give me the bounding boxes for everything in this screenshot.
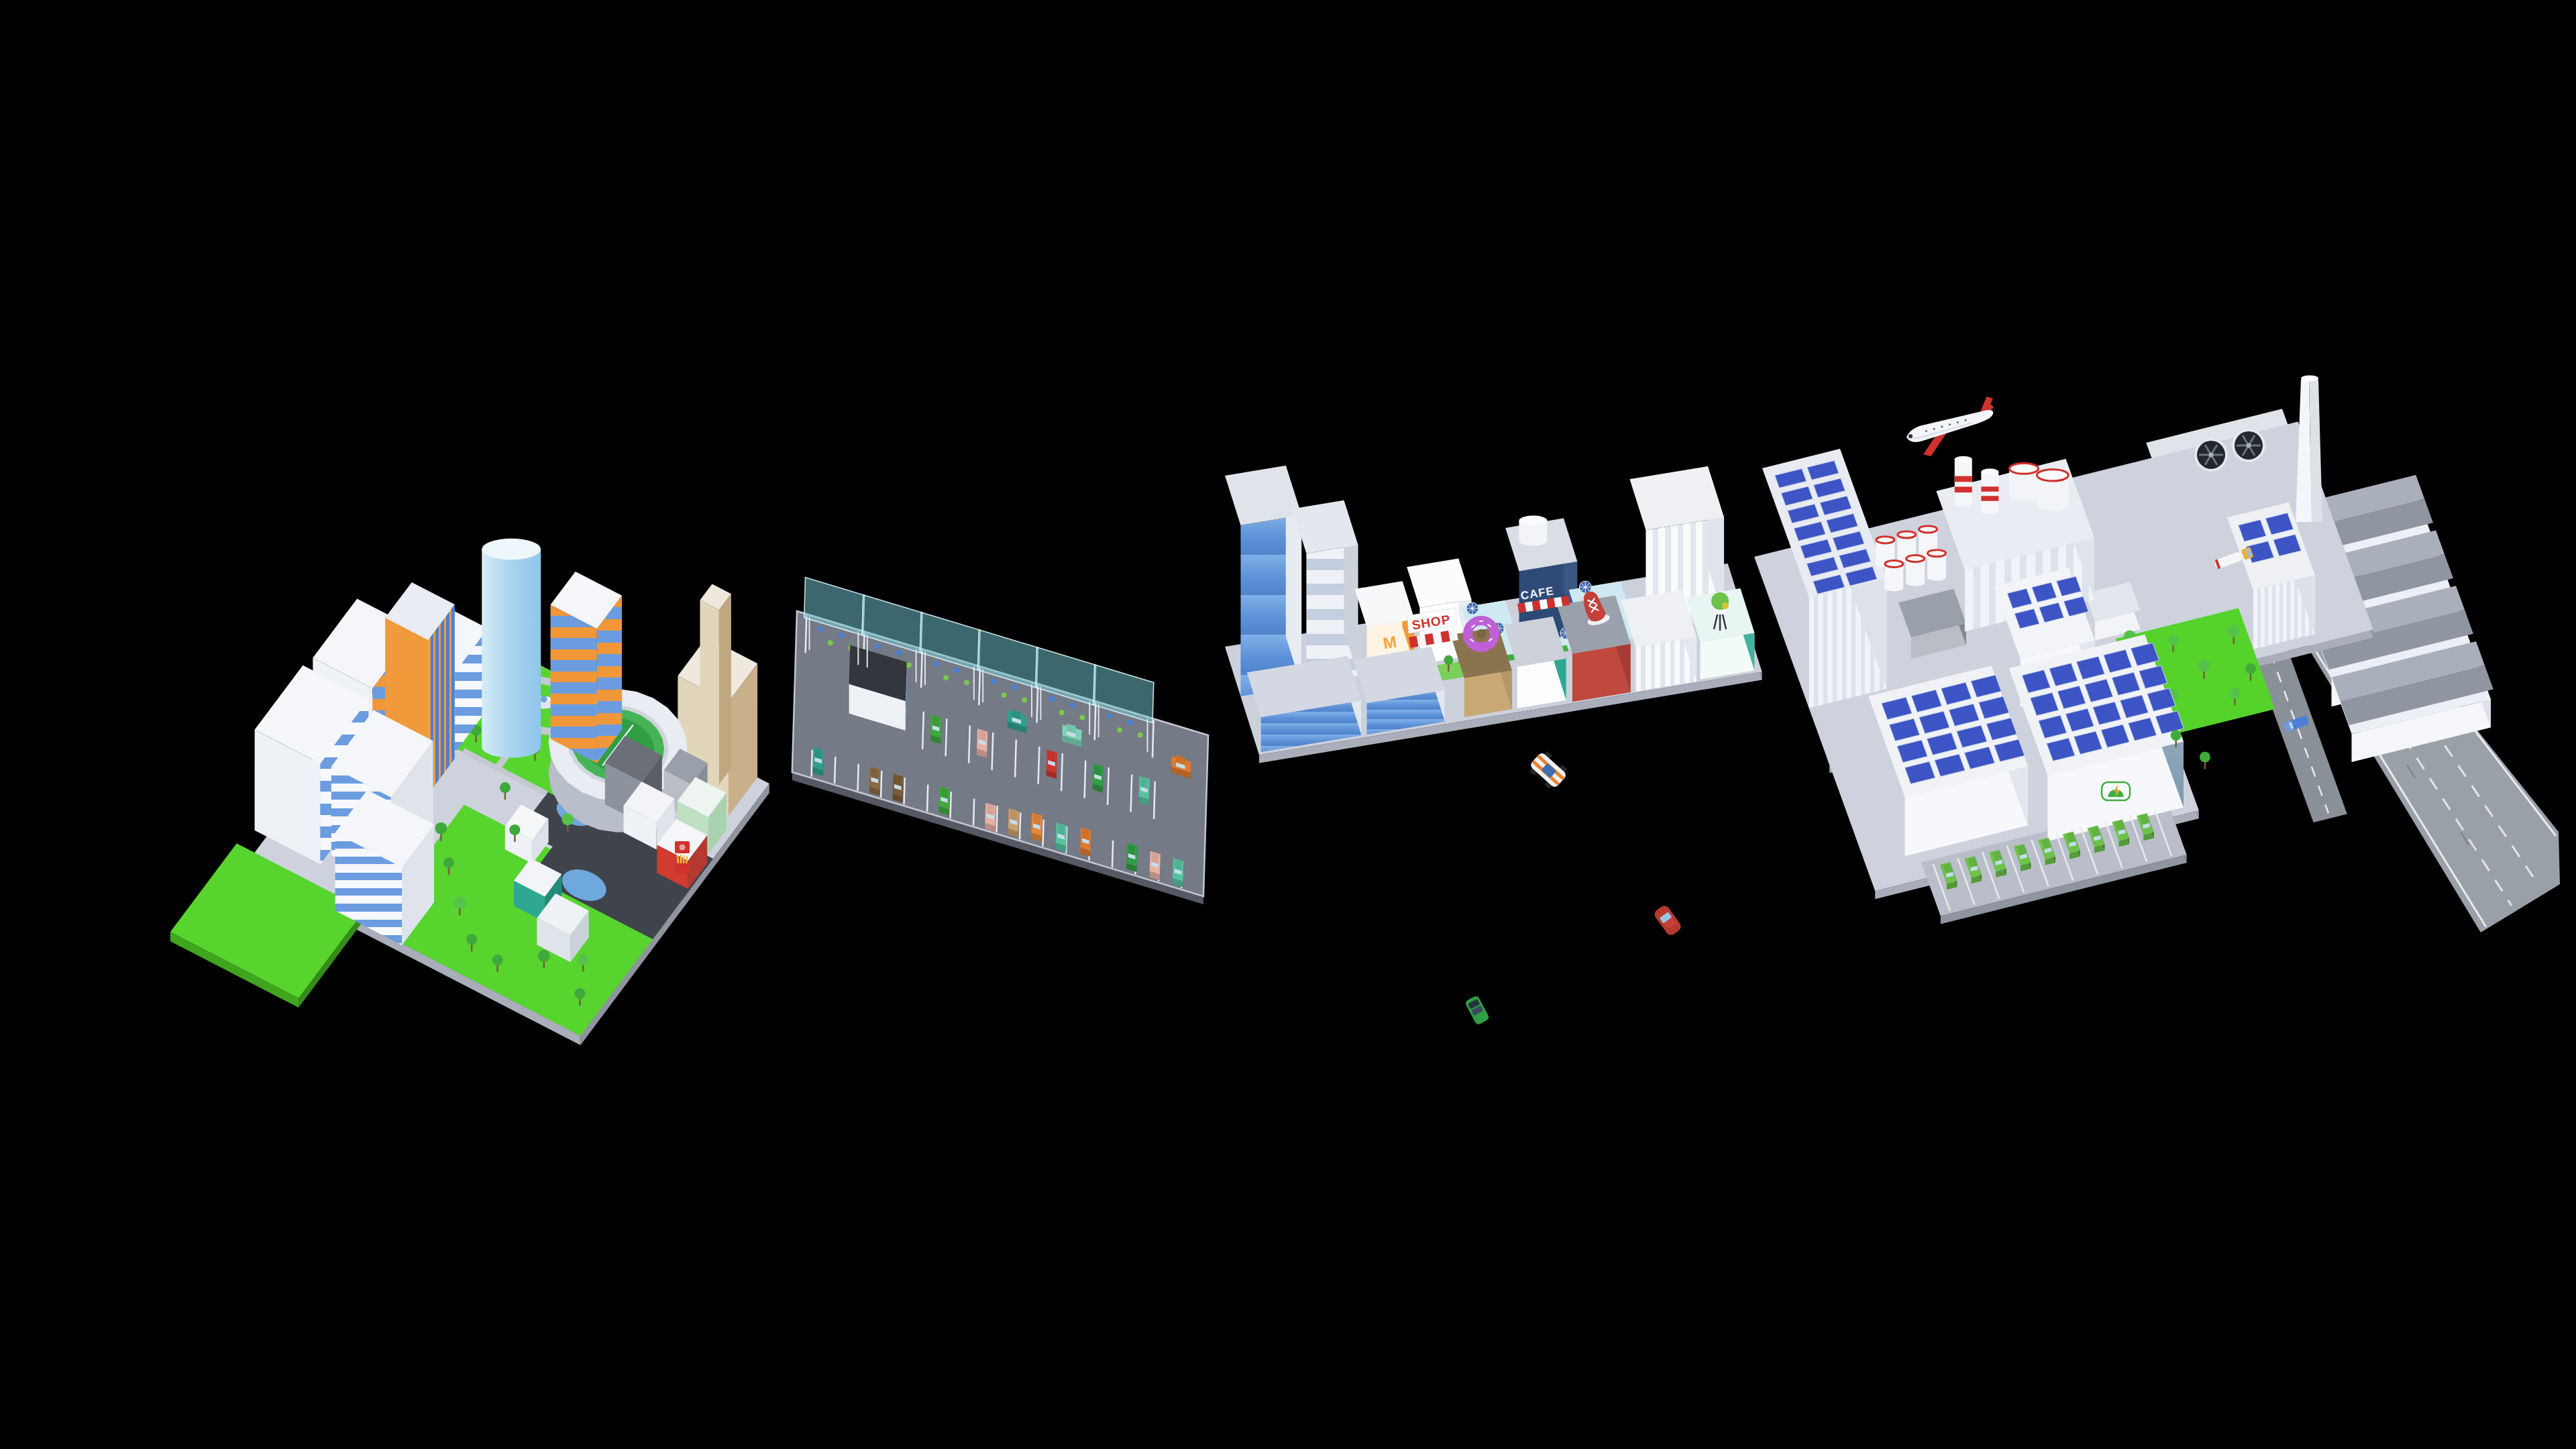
smokestack [2296,376,2322,523]
district-downtown[interactable] [170,539,769,1045]
donut-shop-sign [1468,621,1495,647]
district-commercial-street[interactable] [1225,466,1762,763]
mcdonalds-arches-icon: M [1382,633,1398,653]
race-car[interactable] [1526,749,1570,792]
district-parking-lot[interactable] [792,578,1208,904]
red-car[interactable] [1652,904,1682,937]
airplane[interactable] [1903,396,1998,459]
scene-canvas: M SHOP CAFE [0,0,2576,1449]
green-car[interactable] [1464,995,1490,1026]
